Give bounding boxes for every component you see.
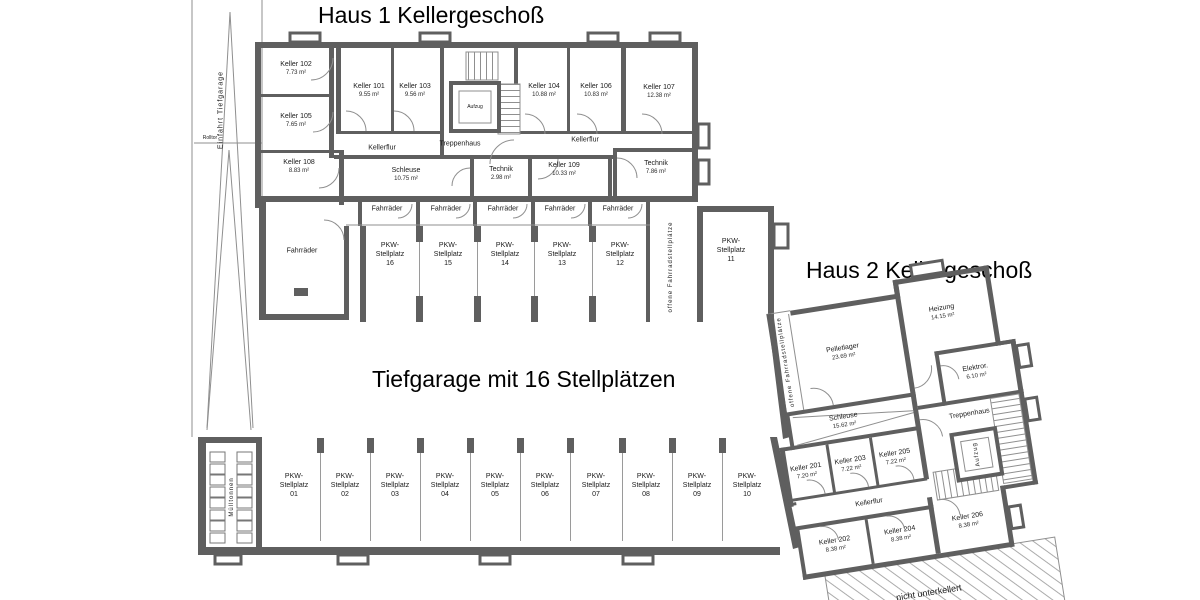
- label-fahrraeder-4: Fahrräder: [545, 206, 576, 213]
- haus2-linework: [741, 233, 1100, 600]
- room-label-keller-109: Keller 10910.33 m²: [548, 162, 580, 178]
- label-kellerflur-left: Kellerflur: [368, 145, 396, 152]
- parking-spot-08: PKW-Stellplatz08: [632, 473, 660, 499]
- parking-spot-01: PKW-Stellplatz01: [280, 473, 308, 499]
- label-muelltonnen: Mülltonnen: [229, 477, 235, 516]
- label-fahrraeder-2: Fahrräder: [431, 206, 462, 213]
- parking-spot-14: PKW-Stellplatz14: [491, 242, 519, 268]
- haus1-title: Haus 1 Kellergeschoß: [318, 2, 544, 29]
- label-fahrraeder-5: Fahrräder: [603, 206, 634, 213]
- room-label-keller-108: Keller 1088.83 m²: [283, 159, 315, 175]
- room-label-technik-1: Technik2.98 m²: [489, 166, 513, 182]
- label-kellerflur-right: Kellerflur: [571, 137, 599, 144]
- parking-spot-16: PKW-Stellplatz16: [376, 242, 404, 268]
- parking-spot-12: PKW-Stellplatz12: [606, 242, 634, 268]
- parking-spot-13: PKW-Stellplatz13: [548, 242, 576, 268]
- label-offene-fahrradstellplaetze-1: offene Fahrradstellplätze: [668, 222, 674, 313]
- room-label-schleuse-h1: Schleuse10.75 m²: [392, 167, 421, 183]
- label-aufzug-h1: Aufzug: [467, 104, 483, 110]
- room-label-keller-103: Keller 1039.56 m²: [399, 83, 431, 99]
- room-label-keller-105: Keller 1057.65 m²: [280, 113, 312, 129]
- label-einfahrt-tiefgarage: Einfahrt Tiefgarage: [218, 71, 225, 149]
- room-label-keller-102: Keller 1027.73 m²: [280, 61, 312, 77]
- label-fahrraeder-room: Fahrräder: [287, 248, 318, 255]
- parking-spot-05: PKW-Stellplatz05: [481, 473, 509, 499]
- label-rolltor: Rolltor: [203, 135, 217, 141]
- parking-spot-06: PKW-Stellplatz06: [531, 473, 559, 499]
- label-fahrraeder-1: Fahrräder: [372, 206, 403, 213]
- parking-spot-03: PKW-Stellplatz03: [381, 473, 409, 499]
- room-label-keller-107: Keller 10712.38 m²: [643, 84, 675, 100]
- room-label-keller-104: Keller 10410.88 m²: [528, 83, 560, 99]
- garage-title: Tiefgarage mit 16 Stellplätzen: [372, 366, 675, 393]
- parking-spot-11: PKW-Stellplatz11: [717, 238, 745, 264]
- room-label-keller-101: Keller 1019.55 m²: [353, 83, 385, 99]
- label-fahrraeder-3: Fahrräder: [488, 206, 519, 213]
- floor-plan: Haus 1 Kellergeschoß Haus 2 Kellergescho…: [0, 0, 1200, 600]
- parking-spot-09: PKW-Stellplatz09: [683, 473, 711, 499]
- room-label-technik-2: Technik7.86 m²: [644, 160, 668, 176]
- parking-spot-02: PKW-Stellplatz02: [331, 473, 359, 499]
- label-treppenhaus-h1: Treppenhaus: [440, 141, 481, 148]
- parking-spot-04: PKW-Stellplatz04: [431, 473, 459, 499]
- parking-spot-15: PKW-Stellplatz15: [434, 242, 462, 268]
- parking-spot-10: PKW-Stellplatz10: [733, 473, 761, 499]
- room-label-keller-106: Keller 10610.83 m²: [580, 83, 612, 99]
- parking-spot-07: PKW-Stellplatz07: [582, 473, 610, 499]
